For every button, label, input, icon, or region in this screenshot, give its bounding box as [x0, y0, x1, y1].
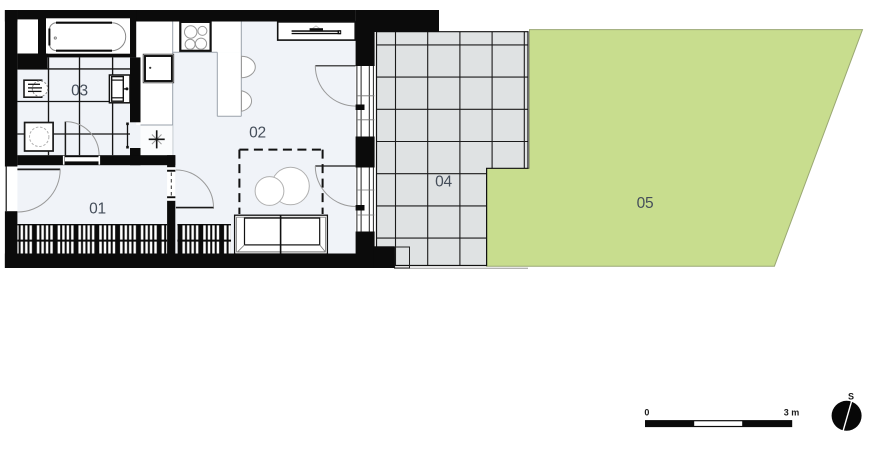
svg-text:3 m: 3 m: [784, 407, 800, 417]
svg-text:02: 02: [249, 125, 266, 142]
svg-text:01: 01: [89, 201, 106, 218]
svg-text:0: 0: [644, 407, 649, 417]
svg-text:04: 04: [435, 174, 452, 191]
svg-text:05: 05: [637, 195, 654, 212]
svg-text:03: 03: [71, 83, 88, 100]
svg-text:S: S: [848, 391, 854, 401]
